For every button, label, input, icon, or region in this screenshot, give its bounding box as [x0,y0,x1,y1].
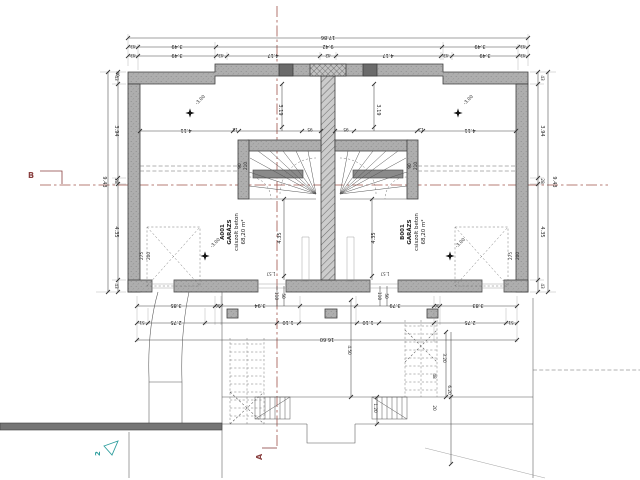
dim-label: 3.79 [389,302,400,308]
driveway-curves [149,292,189,424]
dim-label: 1.10 [282,319,293,325]
spot-level-right: -3.00 [453,94,474,118]
room-name: GARÁZS [226,219,233,244]
dim-label: 3.94 [113,125,119,136]
central-party-wall [321,76,335,280]
dim-chain-right: 43 3.94 28 4.35 43 9.43 [530,70,557,294]
room-name: GARÁZS [406,219,413,244]
dim-label: 4.11 [180,127,191,133]
dim-label: 1.10 [362,319,373,325]
dim-label: 42 [325,53,331,58]
site-lines: 4.50 1.20 3.20 6.20 48 20 [0,292,640,478]
dim-total-depth: 9.43 [101,176,107,187]
dim-label: 4.35 [539,226,545,237]
room-area: 68,20 m² [240,219,247,244]
parking-width: 275 [139,252,144,260]
dim-label: 48 [432,373,437,379]
dim-label: 4.35 [113,226,119,237]
parking-depth: 200 [515,252,520,260]
dim-label: 50 [281,293,286,299]
spot-level-text: -3.00 [462,94,475,107]
node-marker-2: 2 [94,441,118,456]
parking-width: 275 [508,252,513,260]
dim-label: 43 [520,53,526,58]
room-area: 68,20 m² [420,219,427,244]
floor-plan-drawing: -3.00 275 200 -3.00 275 200 -3.00 -3.00 … [0,0,640,480]
dim-label: 110 [274,292,279,300]
room-id: B001 [400,224,406,240]
dim-label: 1.20 [373,403,378,413]
floor-plan-canvas: -3.00 275 200 -3.00 275 200 -3.00 -3.00 … [0,0,640,480]
chimney-block [310,64,346,76]
dim-label: 2.75 [464,319,475,325]
dim-label: 2.75 [170,319,181,325]
dim-label: 4.17 [382,52,393,58]
dim-label: 3.20 [442,353,447,363]
dim-chain-left: 9.43 43 3.94 28 4.35 43 [96,70,126,294]
dim-label: 95 [307,127,313,132]
wall-pier-right [363,64,377,76]
level-marker-icon [200,251,209,260]
dim-label: 43 [130,44,136,49]
dim-label: 4.50 [347,345,352,355]
spot-level-text: -3.00 [194,94,207,107]
room-label-left: A001 GARÁZS csiszolt beton 68,20 m² [220,213,247,251]
door-width: 90 [237,163,242,169]
dim-label: 1.57 [380,271,389,276]
dim-label: 3.49 [171,43,182,49]
room-id: A001 [220,224,226,240]
dim-label: 43 [130,53,136,58]
dim-label: 12 [418,127,424,132]
dim-label: 50 [384,293,389,299]
spot-level-left: -3.00 [185,94,206,118]
parking-stall-left: -3.00 275 200 [139,227,222,286]
dim-label: 4.35 [371,232,377,243]
dim-label: 43 [540,75,545,81]
dim-total-width: 17.86 [321,34,335,40]
dim-label: 43 [540,283,545,289]
forecourt-pier [227,309,238,318]
node-marker-label: 2 [94,451,102,456]
parking-stall-right: -3.00 275 200 [445,227,520,286]
wall-pier-left [279,64,293,76]
ramp-dashed-right [405,320,437,397]
dim-label: 3.19 [277,104,283,115]
beam-left [253,170,303,178]
dim-label: 43 [114,283,119,289]
door-height: 210 [413,162,418,170]
parking-depth: 200 [146,252,151,260]
dim-label: 3.49 [479,52,490,58]
dim-label: 12 [232,127,238,132]
dim-label: 3.94 [539,125,545,136]
dim-label: 3.49 [171,52,182,58]
dim-label: 3.19 [375,104,381,115]
dim-total-depth: 9.43 [551,176,557,187]
dim-label: 30 [434,303,440,308]
room-finish: csiszolt beton [234,213,240,251]
terrain-diagonal [425,448,545,478]
dim-label: 95 [343,127,349,132]
road-edge [0,423,222,430]
forecourt-pier [325,309,337,318]
dim-label: 4.35 [277,232,283,243]
dim-label: 43 [114,75,119,81]
level-marker-icon [445,251,454,260]
dim-label: 43 [443,53,449,58]
ramp-dashed-left [230,338,264,424]
section-marker-b: B [28,171,34,180]
dim-label: 9.42 [322,43,333,49]
dim-label: 43 [520,44,526,49]
dim-label: 43 [218,53,224,58]
dim-label: 3.49 [474,43,485,49]
dim-label: 20 [432,405,437,411]
room-finish: csiszolt beton [414,213,420,251]
forecourt-pier [427,309,438,318]
door-height: 210 [243,162,248,170]
dim-label: 4.17 [267,52,278,58]
dim-label: 3.94 [254,302,265,308]
door-width: 90 [407,163,412,169]
dim-label: 28 [540,178,545,184]
dim-label: 28 [114,178,119,184]
section-marker-a: A [255,453,264,460]
dim-label: 4.11 [464,127,475,133]
dim-label: 3.83 [472,302,483,308]
dim-label: 3.85 [170,302,181,308]
dim-label: 6.20 [447,385,452,395]
room-label-right: B001 GARÁZS csiszolt beton 68,20 m² [400,213,427,251]
dim-label: 51 [139,320,145,325]
dim-total-bottom: 16.60 [320,336,334,342]
dim-label: 51 [508,320,514,325]
dim-label: 110 [377,292,382,300]
dim-label: 30 [215,303,221,308]
dim-label: 1.57 [266,271,275,276]
parking-level: -3.00 [454,237,467,250]
beam-right [353,170,403,178]
